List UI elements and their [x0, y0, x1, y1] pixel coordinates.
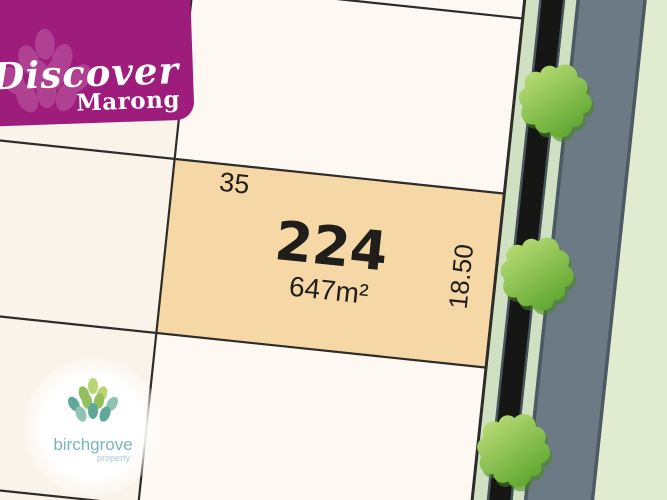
discover-marong-banner: Discover Marong — [0, 0, 195, 128]
lot-frontage-label: 35 — [218, 167, 251, 200]
logo-brand-text: birchgrove — [53, 435, 132, 454]
estate-map: 35 224 647m² 18.50 Discover Marong — [0, 0, 667, 500]
birchgrove-logo-badge: birchgrove property — [24, 358, 162, 496]
logo-leaves-icon — [66, 378, 121, 423]
birchgrove-logo: birchgrove property — [24, 358, 162, 496]
banner-subtitle: Marong — [76, 87, 180, 116]
logo-descriptor-text: property — [97, 453, 131, 463]
